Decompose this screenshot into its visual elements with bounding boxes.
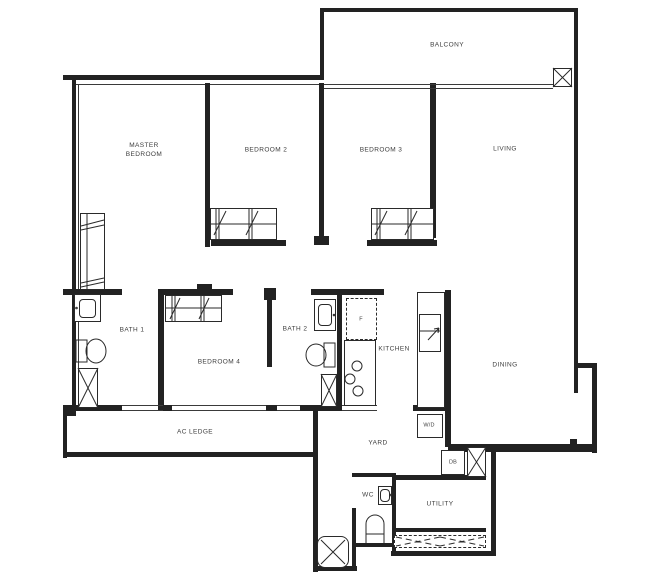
column bbox=[314, 236, 329, 245]
wall bbox=[76, 84, 322, 85]
louvre-vent bbox=[394, 535, 486, 548]
floor-plan: BALCONY MASTER BEDROOM BEDROOM 2 BEDROOM… bbox=[0, 0, 669, 576]
window bbox=[172, 405, 266, 406]
wall bbox=[391, 551, 496, 556]
room-label-yard: YARD bbox=[368, 440, 387, 449]
wall bbox=[352, 473, 396, 477]
fixture-label-wd: W/D bbox=[423, 422, 434, 429]
wall bbox=[394, 528, 486, 532]
shower-area bbox=[78, 368, 98, 408]
window bbox=[277, 405, 300, 406]
floor-trap-box bbox=[317, 536, 349, 568]
room-label-bedroom4: BEDROOM 4 bbox=[198, 359, 241, 368]
vanity-basin bbox=[318, 304, 332, 326]
room-label-dining: DINING bbox=[492, 362, 517, 371]
wc-basin bbox=[380, 489, 390, 502]
wall bbox=[578, 363, 597, 368]
window bbox=[277, 410, 300, 411]
room-label-utility: UTILITY bbox=[427, 501, 454, 510]
room-label-bedroom3: BEDROOM 3 bbox=[360, 147, 403, 156]
wardrobe bbox=[80, 213, 105, 290]
wall bbox=[63, 411, 67, 458]
wall bbox=[574, 8, 578, 393]
room-label-kitchen: KITCHEN bbox=[378, 346, 409, 355]
door-stub bbox=[570, 439, 577, 444]
wall bbox=[352, 543, 396, 547]
wall bbox=[267, 300, 272, 367]
vanity-basin bbox=[79, 299, 96, 318]
wall bbox=[78, 85, 79, 410]
wall bbox=[319, 83, 324, 236]
toilet bbox=[306, 343, 335, 367]
wall bbox=[158, 289, 164, 411]
wall bbox=[320, 8, 324, 80]
wall bbox=[491, 448, 496, 556]
wall bbox=[211, 240, 286, 246]
column bbox=[264, 288, 276, 300]
wall bbox=[163, 405, 172, 411]
ac-unit-box bbox=[467, 447, 486, 477]
room-label-bedroom2: BEDROOM 2 bbox=[245, 147, 288, 156]
wall bbox=[320, 8, 578, 12]
wall bbox=[72, 75, 76, 415]
wall-stub bbox=[197, 284, 212, 289]
window bbox=[172, 410, 266, 411]
wall bbox=[445, 290, 451, 447]
wall bbox=[266, 405, 277, 411]
room-label-wc: WC bbox=[362, 492, 374, 501]
wall bbox=[311, 289, 384, 295]
room-label-balcony: BALCONY bbox=[430, 42, 464, 51]
room-label-bath2: BATH 2 bbox=[283, 326, 308, 335]
window bbox=[122, 405, 163, 406]
wardrobe bbox=[165, 295, 222, 322]
shower-area bbox=[321, 374, 337, 407]
wall bbox=[63, 75, 322, 80]
room-label-bath1: BATH 1 bbox=[120, 327, 145, 336]
wall bbox=[592, 363, 597, 453]
fixture-label-db: DB bbox=[449, 459, 457, 466]
wall bbox=[337, 289, 342, 411]
wardrobe bbox=[210, 208, 277, 240]
kitchen-sink bbox=[419, 314, 441, 352]
toilet bbox=[366, 515, 384, 543]
wall bbox=[367, 240, 437, 246]
toilet bbox=[76, 339, 106, 363]
window bbox=[342, 410, 377, 411]
kitchen-counter bbox=[344, 340, 376, 406]
room-label-master: MASTER BEDROOM bbox=[126, 142, 162, 160]
wardrobe bbox=[371, 208, 434, 240]
room-label-living: LIVING bbox=[493, 146, 517, 155]
wall bbox=[352, 508, 356, 571]
sliding-door bbox=[324, 88, 553, 89]
sliding-door bbox=[324, 84, 553, 85]
fixture-label-fridge: F bbox=[359, 316, 363, 323]
room-label-ac-ledge: AC LEDGE bbox=[177, 429, 213, 438]
wall bbox=[63, 452, 318, 457]
ac-unit-box bbox=[553, 68, 572, 87]
window bbox=[122, 410, 163, 411]
